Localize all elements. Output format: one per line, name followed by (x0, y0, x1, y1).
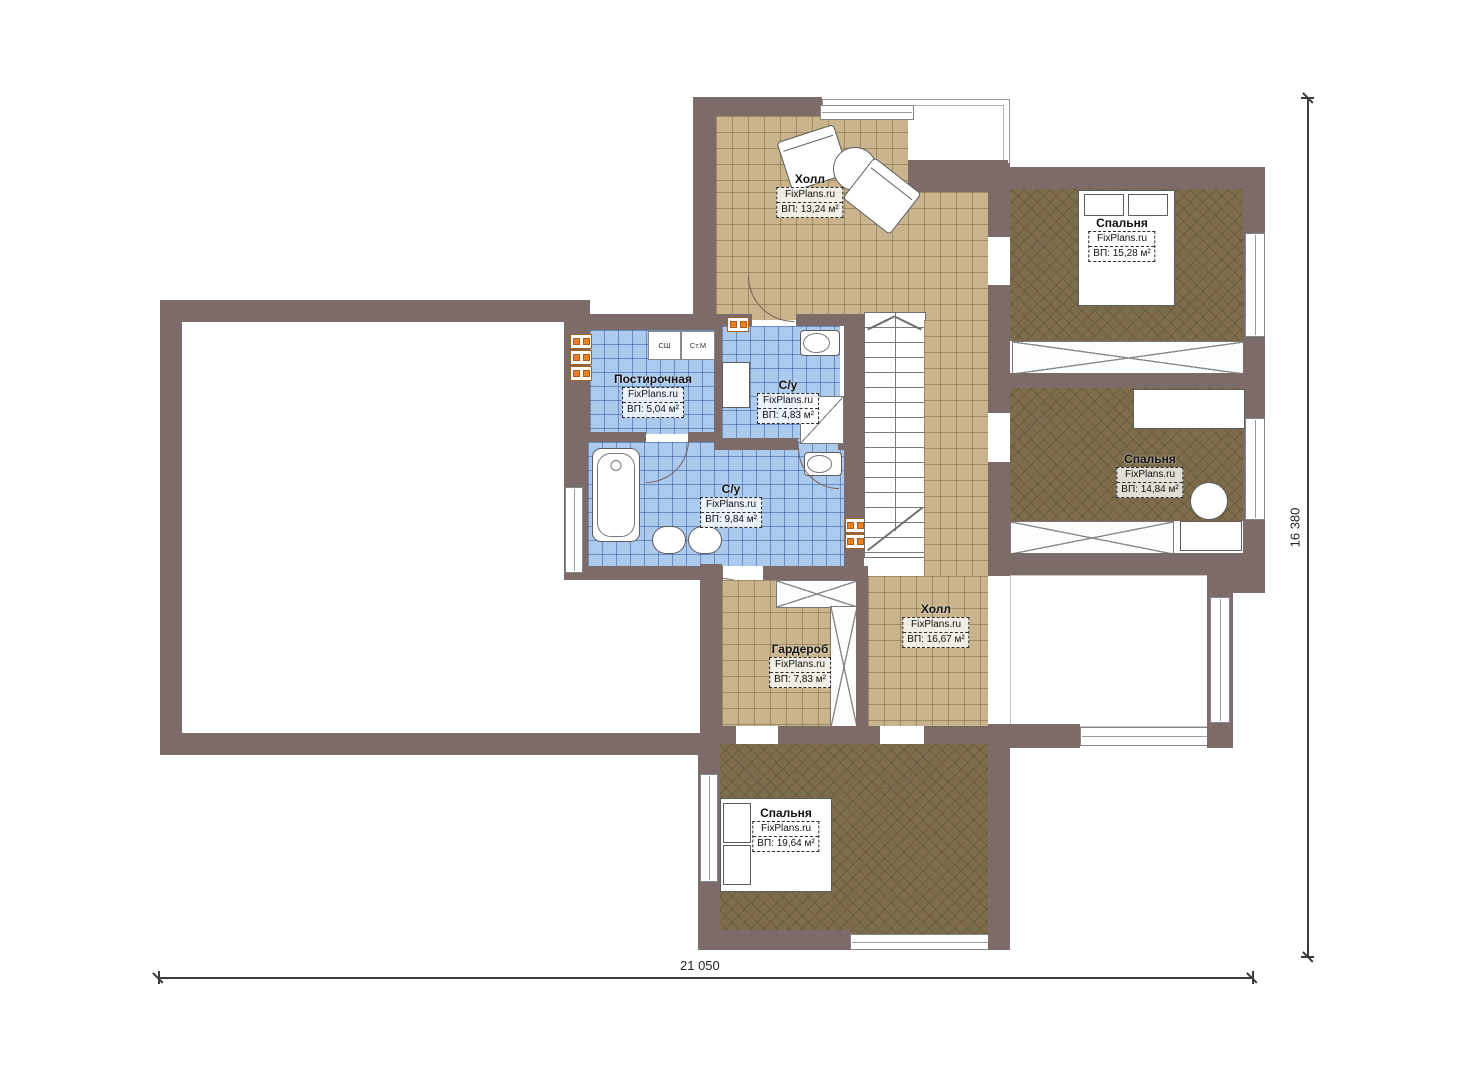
wall (160, 300, 590, 322)
wall (1008, 373, 1245, 388)
room-name: Постирочная (614, 372, 692, 386)
wall (698, 930, 850, 950)
watermark: FixPlans.ru (701, 498, 761, 512)
window (820, 105, 914, 120)
wall (988, 726, 1010, 950)
room-info-box: FixPlans.ru ВП: 16,67 м² (902, 617, 969, 648)
floor-plan: СШ Ст.М (0, 0, 1474, 1080)
appliance-label: СШ (658, 341, 670, 350)
room-label-bedroom-top-right: Спальня FixPlans.ru ВП: 15,28 м² (1088, 216, 1155, 262)
room-info-box: FixPlans.ru ВП: 15,28 м² (1088, 231, 1155, 262)
sink (652, 526, 686, 554)
wall (1008, 553, 1265, 575)
wall (1207, 724, 1233, 748)
room-label-bedroom-right: Спальня FixPlans.ru ВП: 14,84 м² (1116, 452, 1183, 498)
sink (688, 526, 722, 554)
toilet (800, 330, 840, 356)
wall (714, 322, 722, 438)
window (1210, 597, 1230, 723)
wall (700, 564, 722, 740)
room-name: Холл (921, 602, 951, 616)
watermark: FixPlans.ru (903, 618, 968, 632)
radiator (845, 534, 865, 549)
wall (856, 580, 868, 726)
watermark: FixPlans.ru (758, 394, 818, 408)
wall (1008, 167, 1262, 189)
room-label-laundry: Постирочная FixPlans.ru ВП: 5,04 м² (614, 372, 692, 418)
watermark: FixPlans.ru (623, 388, 683, 402)
room-name: Гардероб (772, 642, 829, 656)
room-label-hall-middle: Холл FixPlans.ru ВП: 16,67 м² (902, 602, 969, 648)
dimension-line-right (1307, 97, 1309, 957)
radiator (570, 334, 592, 349)
room-area: ВП: 14,84 м² (1117, 482, 1182, 497)
closet (1012, 341, 1245, 375)
closet (830, 606, 858, 728)
wall (988, 724, 1080, 748)
floor-hall-middle (868, 576, 988, 726)
room-label-bedroom-bottom: Спальня FixPlans.ru ВП: 19,64 м² (752, 806, 819, 852)
room-name: С/у (722, 482, 741, 496)
closet (1010, 521, 1174, 555)
dimension-width-label: 21 050 (680, 958, 720, 973)
room-label-bathroom-small: С/у FixPlans.ru ВП: 4,83 м² (757, 378, 819, 424)
room-info-box: FixPlans.ru ВП: 13,24 м² (776, 187, 843, 218)
room-label-wardrobe: Гардероб FixPlans.ru ВП: 7,83 м² (769, 642, 831, 688)
wall (688, 432, 714, 442)
room-info-box: FixPlans.ru ВП: 14,84 м² (1116, 467, 1183, 498)
window (700, 774, 718, 882)
radiator (727, 317, 749, 332)
wall (988, 462, 1010, 576)
room-info-box: FixPlans.ru ВП: 9,84 м² (700, 497, 762, 528)
room-area: ВП: 7,83 м² (770, 672, 830, 687)
room-area: ВП: 5,04 м² (623, 402, 683, 417)
room-name: С/у (779, 378, 798, 392)
closet (776, 580, 858, 608)
dimension-height-label: 16 380 (1287, 508, 1302, 548)
room-name: Спальня (1124, 452, 1176, 466)
watermark: FixPlans.ru (777, 188, 842, 202)
radiator (845, 518, 865, 533)
room-area: ВП: 16,67 м² (903, 632, 968, 647)
watermark: FixPlans.ru (1089, 232, 1154, 246)
pouf (1190, 482, 1228, 520)
appliance-dryer: СШ (648, 331, 681, 360)
room-area: ВП: 15,28 м² (1089, 246, 1154, 261)
wall (160, 733, 705, 755)
room-label-hall-top: Холл FixPlans.ru ВП: 13,24 м² (776, 172, 843, 218)
bathtub (592, 448, 640, 542)
room-name: Спальня (1096, 216, 1148, 230)
floor-corridor (924, 320, 988, 576)
wall (778, 726, 880, 744)
watermark: FixPlans.ru (770, 658, 830, 672)
room-name: Спальня (760, 806, 812, 820)
watermark: FixPlans.ru (1117, 468, 1182, 482)
room-info-box: FixPlans.ru ВП: 7,83 м² (769, 657, 831, 688)
room-info-box: FixPlans.ru ВП: 4,83 м² (757, 393, 819, 424)
wall (714, 438, 798, 450)
radiator (570, 350, 592, 365)
room-area: ВП: 4,83 м² (758, 408, 818, 423)
wall (763, 566, 868, 580)
room-area: ВП: 13,24 м² (777, 202, 842, 217)
wall (1233, 571, 1265, 593)
wall (160, 300, 182, 755)
wall (988, 285, 1010, 413)
wall (988, 163, 1010, 237)
appliance-label: Ст.М (690, 341, 706, 350)
wall (693, 97, 716, 322)
staircase (864, 312, 926, 558)
wall (590, 432, 646, 442)
room-label-bathroom-large: С/у FixPlans.ru ВП: 9,84 м² (700, 482, 762, 528)
window (1245, 233, 1265, 337)
watermark: FixPlans.ru (753, 822, 818, 836)
window (565, 487, 583, 573)
window (850, 934, 990, 950)
terrace-floor (1010, 575, 1209, 727)
bed-single (1133, 389, 1245, 429)
washbasin (722, 362, 750, 408)
room-area: ВП: 19,64 м² (753, 836, 818, 851)
window (1080, 727, 1210, 746)
desk (1180, 521, 1242, 551)
room-info-box: FixPlans.ru ВП: 5,04 м² (622, 387, 684, 418)
room-name: Холл (795, 172, 825, 186)
appliance-washer: Ст.М (681, 331, 715, 360)
room-area: ВП: 9,84 м² (701, 512, 761, 527)
room-info-box: FixPlans.ru ВП: 19,64 м² (752, 821, 819, 852)
window (1245, 418, 1265, 520)
radiator (570, 366, 592, 381)
dimension-line-bottom (158, 977, 1254, 979)
